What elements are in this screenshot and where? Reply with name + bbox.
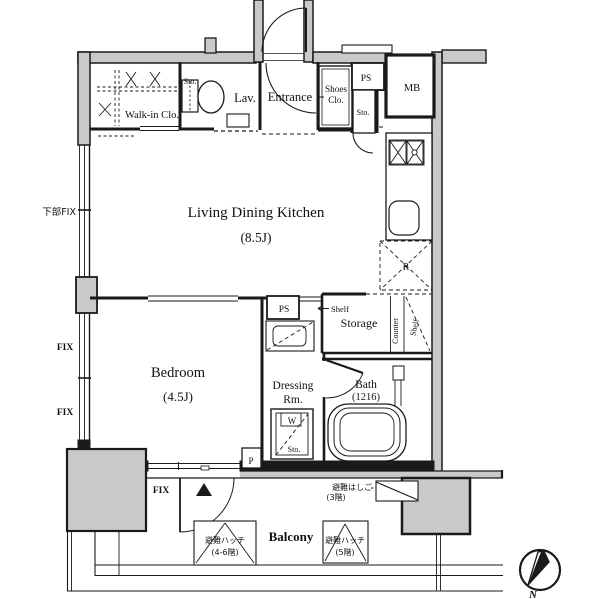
label-dressing-2: Rm. xyxy=(283,394,303,406)
label-storage: Storage xyxy=(341,316,378,330)
bath-counter xyxy=(393,366,404,380)
label-lav: Lav. xyxy=(234,91,256,105)
label-pipe: P xyxy=(248,456,253,466)
label-ldk-name: Living Dining Kitchen xyxy=(188,205,325,221)
evacuation-ladder-icon xyxy=(371,481,418,501)
kitchen-counter xyxy=(386,133,432,240)
label-bedroom-name: Bedroom xyxy=(151,365,206,381)
label-ldk-size: (8.5J) xyxy=(240,230,271,245)
label-fix-lower: FIX xyxy=(57,408,74,418)
label-north: N xyxy=(528,589,538,599)
label-hatch-left-1: 避難ハッチ xyxy=(205,535,245,545)
floorplan-page: Walk-in Clo. Sto. Lav. Entrance Shoes Cl… xyxy=(0,0,600,599)
toilet-icon xyxy=(198,81,224,113)
label-ps-top: PS xyxy=(361,74,372,84)
label-shoes-clo-2: Clo. xyxy=(328,95,344,105)
label-walk-in-closet: Walk-in Clo. xyxy=(125,110,179,121)
label-shoes-clo-1: Shoes xyxy=(325,84,347,94)
label-fridge: R xyxy=(403,262,410,273)
mid-band xyxy=(267,296,329,319)
label-ladder-2: (3階) xyxy=(326,492,345,502)
label-entrance: Entrance xyxy=(268,90,313,104)
label-hatch-right-2: (5階) xyxy=(335,547,354,557)
label-ladder-1: 避難はしご xyxy=(332,482,372,492)
label-bath-size: (1216) xyxy=(352,392,380,403)
direction-triangle-icon xyxy=(196,483,212,496)
label-sto-washer: Sto. xyxy=(288,445,301,454)
label-sto-wic: Sto. xyxy=(184,77,197,86)
label-bedroom-size: (4.5J) xyxy=(163,389,193,404)
label-mb: MB xyxy=(404,83,420,94)
floorplan-drawing: Walk-in Clo. Sto. Lav. Entrance Shoes Cl… xyxy=(0,0,600,599)
label-fix-upper: FIX xyxy=(57,343,74,353)
shelf-arrow-icon xyxy=(318,306,329,311)
label-ps-mid: PS xyxy=(279,305,290,315)
entry-hall-door-arc xyxy=(266,63,316,113)
balcony-window xyxy=(148,462,240,470)
label-washer: W xyxy=(288,416,297,426)
entrance-door-arc xyxy=(262,8,306,61)
compass-icon xyxy=(520,550,560,590)
label-bath-name: Bath xyxy=(355,379,377,391)
interior-walls xyxy=(90,62,432,461)
label-shelf-side: Shelf xyxy=(408,318,420,337)
hall-storage-door-arc xyxy=(353,133,373,153)
label-fix-balcony: FIX xyxy=(153,486,170,496)
neighbor-block-left xyxy=(67,449,146,531)
label-counter: Counter xyxy=(391,318,400,344)
label-hatch-right-1: 避難ハッチ xyxy=(325,535,365,545)
label-shelf-top: Shelf xyxy=(331,304,349,314)
label-kabu-fix: 下部FIX xyxy=(42,206,76,218)
label-dressing-1: Dressing xyxy=(273,380,314,392)
label-sto-entrance: Sto. xyxy=(357,108,370,117)
toilet-tank xyxy=(227,114,249,127)
label-balcony: Balcony xyxy=(269,529,314,544)
label-hatch-left-2: (4-6階) xyxy=(211,547,238,557)
